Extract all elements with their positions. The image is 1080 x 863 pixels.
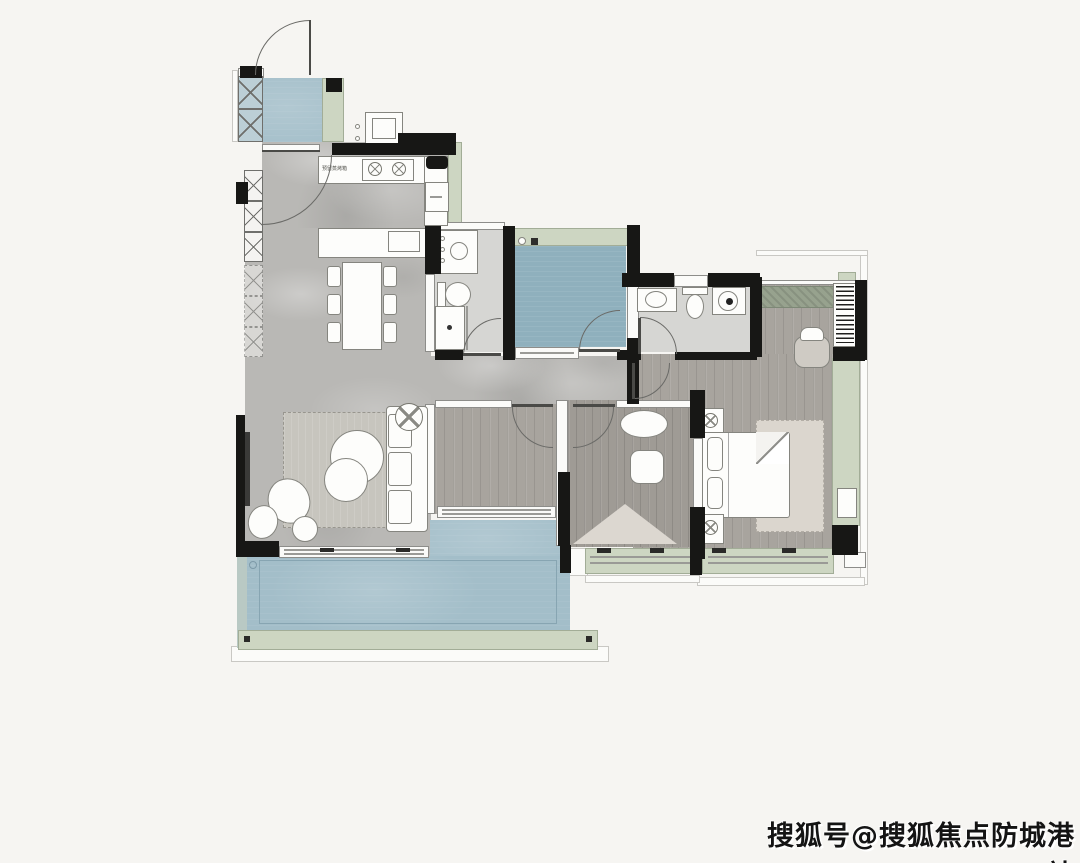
bath1-toilet-bowl bbox=[445, 282, 471, 307]
master-suite-door-leaf bbox=[632, 363, 635, 399]
porch-window-x-1 bbox=[238, 76, 263, 109]
tall-cabinet-dashed-3 bbox=[244, 327, 263, 357]
dining-chair-1 bbox=[327, 266, 341, 287]
blue-room-icon-square bbox=[531, 238, 538, 245]
wall-bath1-bottom bbox=[435, 350, 463, 360]
outer-line-top-right bbox=[756, 250, 868, 256]
outer-line-bottom-master bbox=[697, 577, 865, 586]
hood-knob-2 bbox=[355, 136, 360, 141]
bath1-sink bbox=[450, 242, 468, 260]
bedroom2-top-wall bbox=[435, 400, 512, 408]
bathroom1-left-wall bbox=[425, 274, 435, 352]
wall-bath2-bottom bbox=[675, 352, 757, 360]
hallway-floor bbox=[431, 356, 633, 406]
bay-window-line-4 bbox=[708, 562, 828, 564]
bay-window-line-3 bbox=[708, 556, 828, 558]
bay-tick-1 bbox=[597, 548, 611, 553]
master-right-window-inset bbox=[837, 488, 857, 518]
bay-window-line-1 bbox=[590, 556, 692, 558]
dining-chair-3 bbox=[327, 322, 341, 343]
wall-master-bottom-right bbox=[832, 525, 858, 555]
wall-kitchen-top-thin bbox=[332, 143, 400, 155]
bath2-window-top bbox=[674, 275, 708, 287]
planter-dot-right bbox=[586, 636, 592, 642]
bay-tick-2 bbox=[650, 548, 664, 553]
floor-plan: 预留蒸烤箱 bbox=[0, 0, 1080, 863]
entry-door-leaf bbox=[309, 20, 311, 75]
dining-chair-4 bbox=[383, 266, 397, 287]
bath2-toilet-bowl bbox=[686, 294, 704, 319]
bedroom3-chair bbox=[620, 410, 668, 438]
wall-porch-right bbox=[326, 78, 342, 92]
coffee-table-small bbox=[324, 458, 368, 502]
wardrobe-shelves-top bbox=[836, 286, 854, 312]
blue-room-door-leaf bbox=[579, 349, 620, 352]
bed-pillow-2 bbox=[707, 477, 723, 509]
nightstand-lamp-2 bbox=[703, 520, 718, 535]
living-slider-line2 bbox=[284, 553, 424, 555]
wardrobe-shelves-bottom bbox=[836, 315, 854, 343]
tv bbox=[245, 432, 250, 506]
bay-window-line-2 bbox=[590, 562, 692, 564]
bed-duvet-fold bbox=[756, 432, 789, 464]
bathroom1-door-leaf bbox=[463, 353, 501, 356]
watermark-text: 搜狐号@搜狐焦点防城港站 bbox=[740, 814, 1075, 863]
balcony-inner-line bbox=[259, 560, 557, 624]
wall-kitchen-top-thick bbox=[398, 133, 456, 155]
bed-pillow-1 bbox=[707, 437, 723, 471]
shoe-cabinet-2 bbox=[244, 201, 263, 232]
bay-tick-3 bbox=[712, 548, 726, 553]
wall-blueroom-right-top bbox=[627, 225, 640, 275]
wall-below-wardrobe bbox=[833, 347, 865, 361]
wall-bed3-master-top bbox=[690, 390, 705, 438]
balcony-floor-upper bbox=[430, 520, 570, 560]
blue-room-sill-line bbox=[520, 352, 574, 354]
bedroom2-window-sill bbox=[437, 506, 556, 518]
planter-dot-left bbox=[244, 636, 250, 642]
wall-bath1-blueroom bbox=[503, 226, 515, 360]
nightstand-lamp-1 bbox=[703, 413, 718, 428]
dining-chair-6 bbox=[383, 322, 397, 343]
dining-chair-2 bbox=[327, 294, 341, 315]
bath2-sink bbox=[645, 291, 667, 308]
sofa-cushion-2 bbox=[388, 452, 412, 486]
balcony-planter bbox=[238, 630, 598, 650]
living-slider-tick2 bbox=[396, 548, 410, 552]
entry-porch-floor bbox=[263, 78, 322, 142]
kitchen-corner-sink bbox=[426, 156, 448, 169]
bedroom3-door-leaf bbox=[573, 404, 615, 407]
blue-room-icon-circle bbox=[518, 237, 526, 245]
wall-bath2-top-left bbox=[622, 273, 674, 287]
ottoman bbox=[292, 516, 318, 542]
dining-chair-5 bbox=[383, 294, 397, 315]
wall-living-bottom-left bbox=[236, 541, 279, 557]
kitchen-door-leaf bbox=[262, 150, 320, 152]
master-desk-chair bbox=[800, 327, 824, 341]
blue-room-top-window bbox=[512, 228, 628, 246]
hood-knob-1 bbox=[355, 124, 360, 129]
washer-faucet bbox=[726, 298, 733, 305]
wall-master-bay-left bbox=[690, 545, 702, 575]
porch-window-x-2 bbox=[238, 109, 263, 142]
bay-tick-4 bbox=[782, 548, 796, 553]
bedroom2-sill-line2 bbox=[442, 513, 551, 515]
wall-bed2-right-bottom bbox=[558, 472, 570, 546]
master-closet-band bbox=[757, 286, 835, 308]
range-hood-inner bbox=[372, 118, 396, 139]
outer-line-bottom-bed3 bbox=[585, 575, 700, 583]
living-slider-tick1 bbox=[320, 548, 334, 552]
shoe-cabinet-3 bbox=[244, 232, 263, 262]
bath1-shower-drain bbox=[447, 325, 452, 330]
plant-pot bbox=[395, 403, 423, 431]
island-sink bbox=[388, 231, 420, 252]
wall-bath1-topleft bbox=[425, 226, 441, 274]
bathroom2-door-leaf bbox=[638, 318, 641, 354]
burner-2 bbox=[392, 162, 406, 176]
wall-left-upper bbox=[236, 182, 248, 204]
wall-balcony-bed3 bbox=[560, 545, 571, 573]
balcony-drain bbox=[249, 561, 257, 569]
fridge-handle bbox=[430, 196, 442, 198]
burner-1 bbox=[368, 162, 382, 176]
bedroom2-sill-line1 bbox=[442, 509, 551, 511]
bed-duvet-line bbox=[728, 433, 729, 517]
sofa-cushion-3 bbox=[388, 490, 412, 524]
tall-cabinet-dashed-2 bbox=[244, 296, 263, 327]
wall-living-left bbox=[236, 415, 245, 553]
dining-table bbox=[342, 262, 382, 350]
wall-bath2-right bbox=[750, 277, 762, 357]
bedroom2-door-leaf bbox=[512, 404, 553, 407]
bedroom3-table bbox=[630, 450, 664, 484]
tall-cabinet-dashed-1 bbox=[244, 265, 263, 296]
